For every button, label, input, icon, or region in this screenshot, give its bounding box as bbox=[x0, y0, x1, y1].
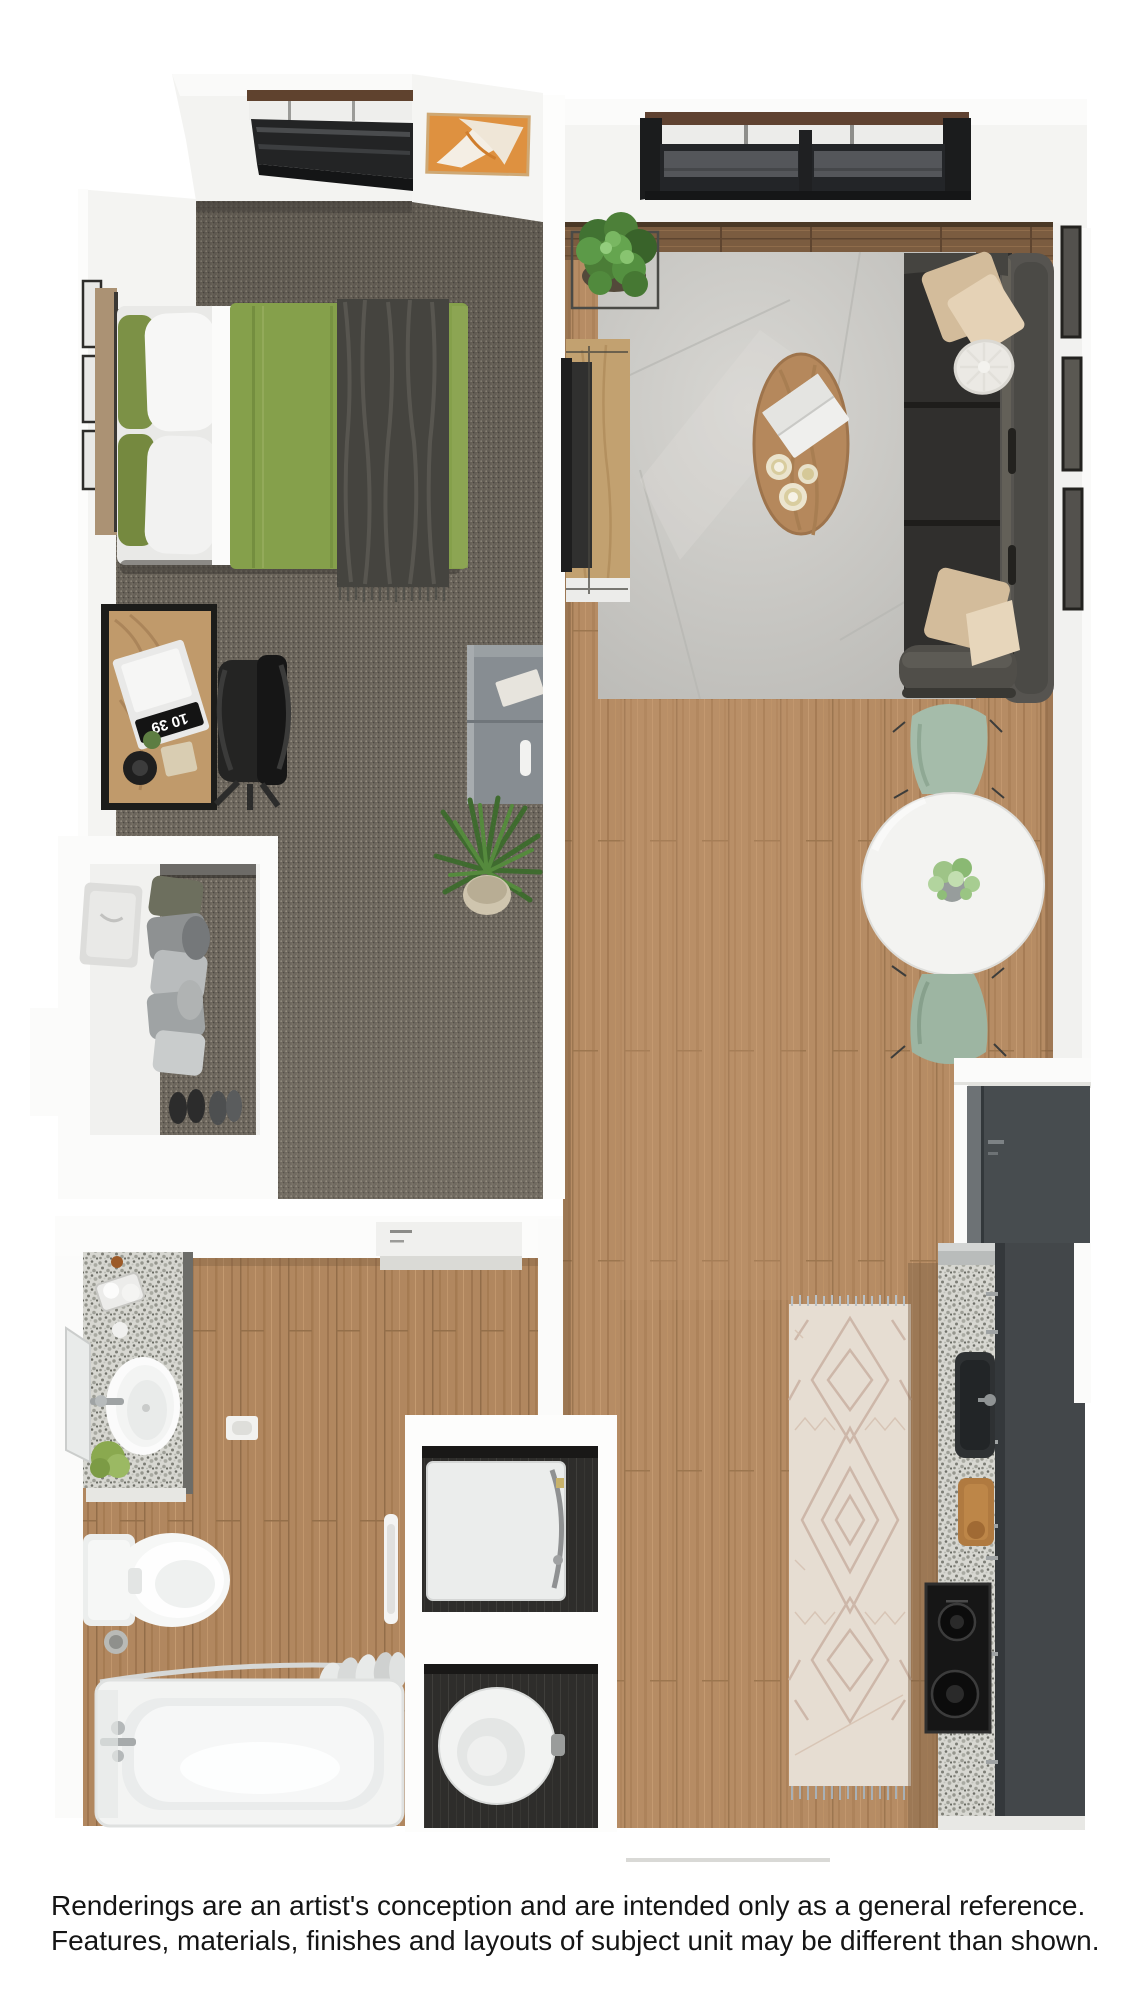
svg-text:Renderings are an artist's con: Renderings are an artist's conception an… bbox=[51, 1890, 1085, 1921]
svg-text:Features, materials, finishes: Features, materials, finishes and layout… bbox=[51, 1925, 1100, 1956]
